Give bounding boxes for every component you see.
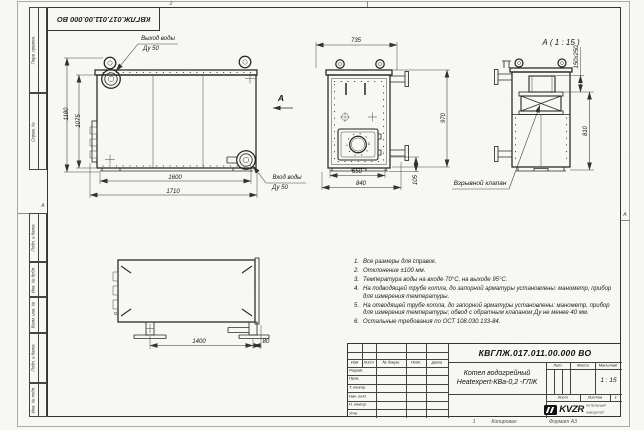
explosion-valve-callout: Взрывной клапан bbox=[454, 181, 507, 188]
note-row: 3.Температура воды на входе 70°С, на вых… bbox=[352, 277, 618, 285]
side-view bbox=[113, 258, 269, 349]
end-view bbox=[316, 42, 450, 190]
dim-80: 80 bbox=[263, 339, 270, 345]
dim-970: 970 bbox=[441, 113, 447, 123]
sheet-label: Лист bbox=[546, 394, 580, 401]
copied-label: Копировал bbox=[491, 419, 516, 424]
row-tcontrol: Т. контр. bbox=[349, 384, 379, 393]
titleblock-designation: КВГЛЖ.017.011.00.000 ВО bbox=[448, 344, 622, 362]
col-izm: Изм bbox=[348, 359, 362, 367]
note-row: 4.На подводящей трубе котла, до запорной… bbox=[352, 286, 618, 302]
scale-value: 1 : 15 bbox=[595, 369, 622, 394]
front-view bbox=[64, 44, 306, 198]
note-row: 2.Отклонение ±100 мм. bbox=[352, 268, 618, 276]
outlet-callout-label: Выход воды bbox=[141, 36, 175, 42]
dim-1400: 1400 bbox=[192, 339, 205, 345]
dim-105: 105 bbox=[413, 175, 419, 185]
dim-1600: 1600 bbox=[168, 175, 181, 181]
dim-150x250: 150x250 bbox=[574, 45, 580, 68]
kvzr-logo-text: KVZR bbox=[559, 405, 584, 415]
dim-1710: 1710 bbox=[166, 189, 179, 195]
row-developed: Разраб. bbox=[349, 367, 379, 376]
row-approved: Утв. bbox=[349, 409, 379, 418]
product-line2: Heatexpert-КВа-0,2 -ГЛЖ bbox=[457, 378, 537, 387]
view-a bbox=[452, 47, 594, 189]
dim-1075: 1075 bbox=[76, 114, 82, 127]
product-line1: Котел водогрейный bbox=[457, 369, 537, 378]
row-ncontrol: Н. контр. bbox=[349, 401, 379, 410]
inlet-callout-label: Вход воды bbox=[272, 175, 301, 181]
inlet-dn-label: Ду 50 bbox=[272, 185, 288, 191]
dim-650: 650 bbox=[352, 169, 362, 175]
technical-notes: 1.Все размеры для справок. 2.Отклонение … bbox=[352, 259, 618, 328]
outlet-dn-label: Ду 50 bbox=[143, 46, 159, 52]
org-name-line1: КОТЕЛЬНЫЙ bbox=[586, 405, 606, 408]
format-label: Формат А3 bbox=[549, 419, 577, 424]
dim-840: 840 bbox=[356, 181, 366, 187]
sheets-value: 1 bbox=[610, 394, 622, 401]
bottom-zone-number: 1 bbox=[473, 419, 476, 424]
dim-1180: 1180 bbox=[64, 108, 70, 121]
note-row: 5.На отводящей трубе котла, до запорной … bbox=[352, 303, 618, 319]
note-row: 1.Все размеры для справок. bbox=[352, 259, 618, 267]
lit-label: Лит. bbox=[546, 362, 570, 369]
org-name-line2: ЗАВОД РЭП bbox=[586, 411, 606, 414]
scale-label: Масштаб bbox=[595, 362, 622, 369]
kvzr-logo-icon bbox=[544, 405, 557, 415]
dim-735: 735 bbox=[351, 38, 361, 44]
view-direction-letter: А bbox=[278, 94, 284, 103]
col-date: Дата bbox=[426, 359, 448, 367]
col-docnum: № докум. bbox=[376, 359, 406, 367]
product-name: Котел водогрейный Heatexpert-КВа-0,2 -ГЛ… bbox=[448, 362, 546, 394]
note-row: 6.Остальные требования по ОСТ 108.030.13… bbox=[352, 319, 618, 327]
row-dept-head: Нач. отд. bbox=[349, 392, 379, 401]
row-checked: Пров. bbox=[349, 375, 379, 384]
org-cell: KVZR КОТЕЛЬНЫЙ ЗАВОД РЭП bbox=[546, 401, 622, 418]
sheets-label: Листов bbox=[580, 394, 610, 401]
drawing-sheet: ~~~~~~~~~~~~~~~~~~~~~~~~~~~~~~~~~~~~~~~~… bbox=[0, 0, 644, 430]
col-list: Лист bbox=[362, 359, 376, 367]
col-sign: Подп. bbox=[406, 359, 426, 367]
dim-810: 810 bbox=[583, 126, 589, 136]
title-block: КВГЛЖ.017.011.00.000 ВО Изм Лист № докум… bbox=[347, 343, 621, 417]
mass-label: Масса bbox=[570, 362, 595, 369]
